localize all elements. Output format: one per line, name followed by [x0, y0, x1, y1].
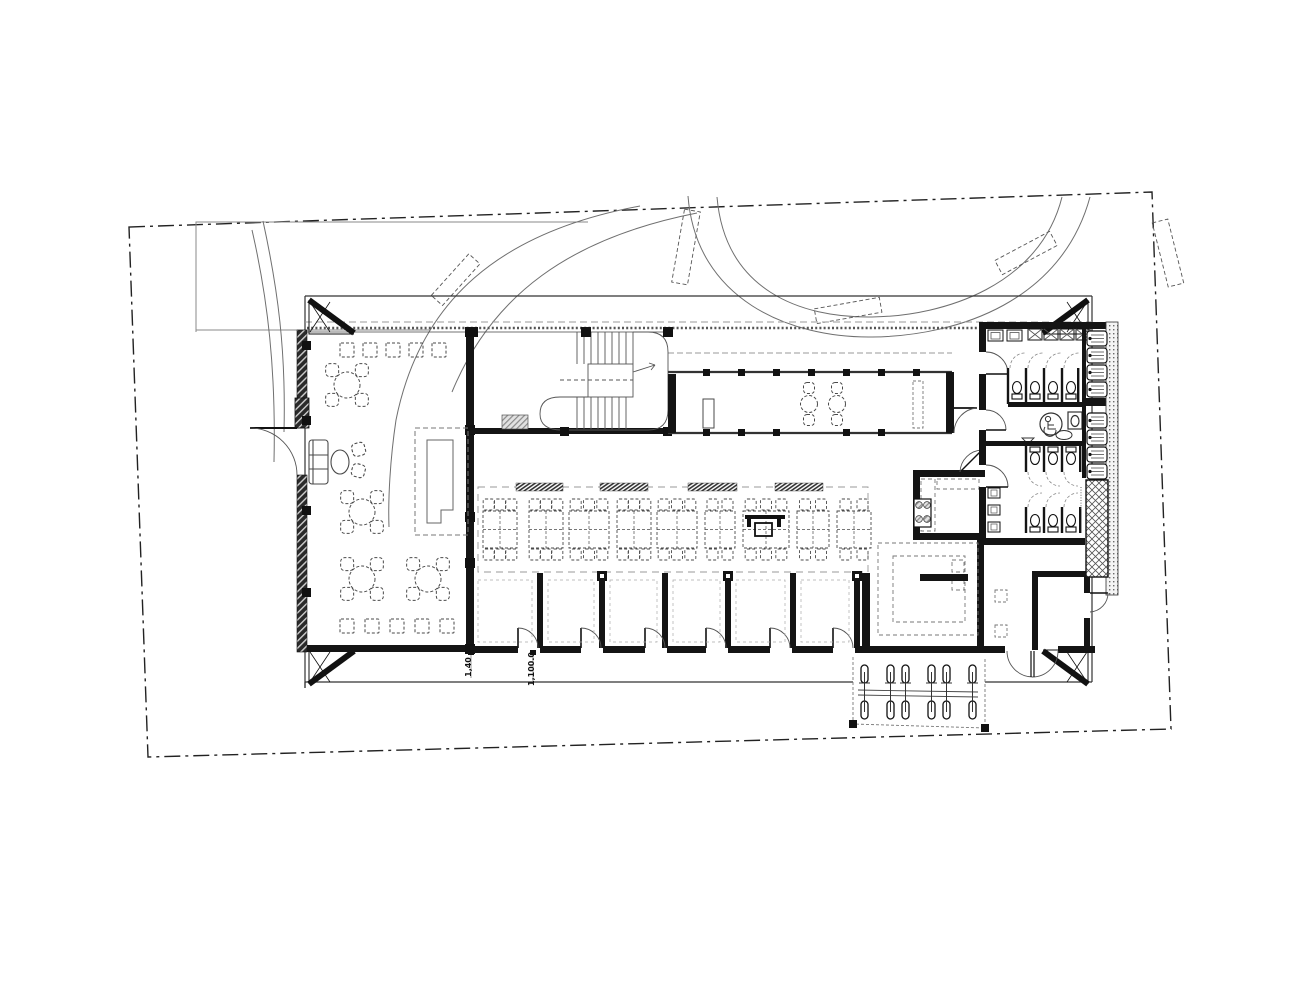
chair: [570, 499, 581, 510]
accessible-toilet: [1068, 412, 1082, 429]
stall-partition: [1007, 368, 1009, 404]
chair: [552, 549, 563, 560]
door-swing-arc: [518, 628, 538, 648]
chair: [495, 549, 506, 560]
round-table-group: [341, 558, 384, 601]
stall-door-arc: [1064, 353, 1079, 368]
stall-door-arc: [1064, 472, 1078, 486]
sink-basin: [991, 507, 997, 513]
toilet-bowl: [1013, 382, 1022, 394]
stool: [340, 343, 354, 357]
driveway-curves: [252, 196, 1090, 527]
toilet-bowl: [1067, 453, 1076, 465]
wash-basin: [1028, 329, 1042, 340]
stall-partition: [1061, 446, 1063, 472]
chair: [341, 520, 354, 533]
restroom-block: [979, 322, 1118, 650]
chair: [840, 549, 851, 560]
serving-station-top: [745, 515, 785, 519]
corridor-wing: [668, 369, 977, 436]
round-table-group: [326, 364, 369, 407]
illegible-label-bar: [516, 483, 563, 491]
sink-rim: [988, 488, 1000, 498]
cafe-right-wall: [466, 330, 474, 652]
restroom-left-wall: [979, 325, 986, 543]
dining-table-group: [705, 499, 735, 560]
illegible-label-bar: [688, 483, 737, 491]
toilet-tank: [1012, 394, 1022, 399]
cafe-stools-bottom: [340, 619, 454, 633]
bay-door: [581, 628, 601, 648]
mens-stall-back-wall: [1008, 402, 1084, 407]
chair: [658, 549, 669, 560]
stall-door-arc: [1046, 493, 1060, 507]
site-plan: [129, 192, 1184, 757]
chair: [761, 499, 772, 510]
sink-rim: [988, 505, 1000, 515]
chair: [745, 499, 756, 510]
stall-partition: [1079, 507, 1081, 533]
stool: [363, 343, 377, 357]
bay-partition-wall: [854, 573, 860, 648]
corridor-table-group: [829, 383, 846, 426]
bay-partition-wall: [725, 573, 731, 648]
accessible-wc-bottom-wall: [979, 441, 1084, 446]
washbasin-counter: [988, 329, 1090, 341]
bike-rack-rails: [858, 690, 978, 697]
chair: [672, 549, 683, 560]
round-table: [415, 566, 441, 592]
round-table-group: [407, 558, 450, 601]
round-table: [829, 396, 846, 413]
chair: [658, 499, 669, 510]
sink-basin: [991, 490, 997, 496]
site-boundary: [129, 192, 1171, 757]
round-table: [334, 372, 360, 398]
round-table: [349, 499, 375, 525]
scullery-wall-stub: [920, 574, 968, 581]
chair: [341, 558, 354, 571]
stall-door-arc: [1046, 353, 1061, 368]
toilet: [1012, 382, 1022, 400]
sink: [988, 522, 1000, 532]
bay-partition-wall: [662, 573, 668, 648]
chair: [541, 499, 552, 510]
dining-table-group: [797, 499, 829, 560]
stair-direction-arrow: [633, 363, 655, 372]
stall-door-arc: [1028, 493, 1042, 507]
exterior-ramp: [1086, 480, 1108, 577]
chair: [529, 499, 540, 510]
door-swing-arc: [770, 628, 790, 648]
bay-partition-wall: [599, 573, 605, 648]
stall-door-arc: [1010, 353, 1025, 368]
bike-parking-pad: [849, 657, 989, 732]
toilet: [1048, 515, 1058, 533]
urinal-shaft: [1082, 322, 1118, 595]
south-wall: [470, 646, 1095, 653]
bay-door: [706, 628, 726, 648]
bay-doors: [518, 628, 853, 648]
scullery-left-wall: [862, 573, 870, 650]
dining-hall: [470, 483, 1095, 653]
stool: [440, 619, 454, 633]
toilet: [1048, 447, 1058, 465]
kitchen-stove: [914, 499, 931, 527]
round-table: [349, 566, 375, 592]
curve-sweep-outer: [389, 206, 640, 527]
stall-door-arc: [1028, 472, 1042, 486]
column-cap-inner: [855, 574, 859, 578]
mens-toilet-stalls: [1007, 353, 1080, 404]
corridor-shelf: [913, 381, 923, 428]
cafe-left-wall-lower: [297, 475, 307, 652]
chair: [832, 383, 843, 394]
bay-partition-wall: [790, 573, 796, 648]
illegible-label-bar: [775, 483, 823, 491]
chair: [617, 499, 628, 510]
stool: [409, 343, 423, 357]
stall-partition: [1079, 446, 1081, 472]
floor-plan-sheet: 1,40 1,100.0: [0, 0, 1294, 1000]
toilet-tank: [1066, 527, 1076, 532]
stall-partition: [1043, 507, 1045, 533]
stall-partition: [1043, 368, 1045, 404]
serving-station-leg: [747, 519, 751, 527]
chair: [552, 499, 563, 510]
bay-door: [833, 628, 853, 648]
building-envelope: [305, 296, 1092, 688]
chair: [800, 549, 811, 560]
bicycle: [859, 665, 870, 719]
corner-brace-bottom-right: [1043, 650, 1088, 684]
stool: [386, 343, 400, 357]
corridor-right-end-wall: [946, 372, 954, 433]
chair: [436, 558, 449, 571]
toilet-bowl: [1049, 453, 1058, 465]
column-cap-inner: [600, 574, 604, 578]
urinal-drain: [1088, 371, 1091, 374]
canopy-outline: [305, 296, 1092, 688]
stool: [432, 343, 446, 357]
south-terrace: [849, 651, 1058, 732]
curve-sweep-inner: [452, 213, 697, 392]
chair: [776, 549, 787, 560]
cafe-round-tables: [326, 364, 450, 601]
round-table-group: [341, 491, 384, 534]
toilet-tank: [1048, 447, 1058, 452]
womens-toilet-stalls: [1025, 446, 1082, 533]
chair: [707, 549, 718, 560]
bay-partition-wall: [537, 573, 543, 648]
chair: [407, 558, 420, 571]
road-markings: [431, 209, 1183, 323]
urinal-drain: [1088, 419, 1091, 422]
urinal-drain: [1088, 354, 1091, 357]
dimensions: 1,40 1,100.0: [464, 650, 536, 686]
sink-rim: [988, 522, 1000, 532]
corridor-left-end-wall: [668, 374, 676, 433]
urinal-unit: [1087, 365, 1107, 380]
toilet-bowl: [1049, 382, 1058, 394]
dining-table-group: [743, 499, 789, 560]
restroom-doors: [986, 352, 1008, 487]
chair: [541, 549, 552, 560]
chair: [584, 549, 595, 560]
sofa-group: [309, 440, 367, 484]
chair: [495, 499, 506, 510]
corridor-bench: [703, 399, 714, 428]
chair: [640, 549, 651, 560]
cafe-bottom-wall: [307, 645, 470, 652]
chair: [722, 499, 733, 510]
chair: [776, 499, 787, 510]
urinal-drain: [1088, 388, 1091, 391]
toilet-tank: [1030, 447, 1040, 452]
chair: [570, 549, 581, 560]
corridor-exit-door: [954, 408, 977, 433]
corridor-table-group: [801, 383, 818, 426]
bicycle: [900, 665, 911, 719]
chair: [840, 499, 851, 510]
chair: [804, 415, 815, 426]
chair: [745, 549, 756, 560]
toilet-bowl: [1049, 515, 1058, 527]
chair: [672, 499, 683, 510]
private-bays: [478, 571, 862, 648]
dining-table-group: [529, 499, 563, 560]
stair-mat: [502, 415, 528, 429]
illegible-label-bar: [600, 483, 648, 491]
chair: [370, 558, 383, 571]
stall-partition: [1061, 368, 1063, 404]
chair: [685, 549, 696, 560]
chair: [722, 549, 733, 560]
chair: [804, 383, 815, 394]
door-swing-arc: [833, 628, 853, 648]
chair: [685, 499, 696, 510]
bay-door: [770, 628, 790, 648]
corridor-tables: [801, 383, 846, 426]
chair: [816, 549, 827, 560]
door-swing-arc: [581, 628, 601, 648]
toilet-tank: [1066, 394, 1076, 399]
sink: [988, 330, 1003, 341]
chair: [832, 415, 843, 426]
chair: [761, 549, 772, 560]
entrance-door: [250, 428, 297, 475]
stall-door-arc: [1064, 493, 1078, 507]
stool: [340, 619, 354, 633]
urinal-unit: [1087, 447, 1107, 462]
sink-basin: [1010, 333, 1019, 340]
toilet-tank: [1048, 527, 1058, 532]
chair: [857, 499, 868, 510]
urinal-drain: [1088, 436, 1091, 439]
chair: [370, 587, 383, 600]
chair: [629, 549, 640, 560]
chair: [597, 549, 608, 560]
stair-hall-bottom-wall: [470, 428, 670, 434]
stair-hall-columns: [468, 327, 673, 436]
chair: [800, 499, 811, 510]
kitchen-door: [960, 450, 982, 472]
chair: [506, 549, 517, 560]
rear-room-door: [1090, 593, 1108, 612]
chair: [341, 587, 354, 600]
stall-door-arc: [1028, 353, 1043, 368]
urinal-drain: [1088, 337, 1091, 340]
chair: [707, 499, 718, 510]
door-swing-arc: [706, 628, 726, 648]
cafe-stools-top: [340, 343, 446, 357]
sink: [988, 488, 1000, 498]
stall-partition: [1043, 446, 1045, 472]
stair-hall: [468, 327, 673, 436]
urinal-unit: [1087, 464, 1107, 479]
bicycle: [885, 665, 896, 719]
chair: [370, 491, 383, 504]
chair: [597, 499, 608, 510]
chair: [857, 549, 868, 560]
dining-label-bars: [516, 483, 823, 491]
round-table: [801, 396, 818, 413]
dim-label-b: 1,100.0: [527, 652, 536, 686]
sink-basin: [991, 333, 1000, 340]
stool: [415, 619, 429, 633]
curve-u-inner: [717, 197, 1062, 317]
chair: [436, 587, 449, 600]
chair: [341, 491, 354, 504]
dim-label-a: 1,40: [464, 657, 473, 677]
bicycle: [926, 665, 937, 719]
basin-cross: [1028, 329, 1042, 340]
toilet-tank: [1030, 527, 1040, 532]
bay-partitions: [537, 571, 862, 648]
sink-basin: [991, 524, 997, 530]
urinal-unit: [1087, 348, 1107, 363]
toilet-tank: [1030, 394, 1040, 399]
sink: [988, 505, 1000, 515]
chair: [483, 499, 494, 510]
column-cap-inner: [726, 574, 730, 578]
stall-door-arc: [1046, 472, 1060, 486]
bicycle: [941, 665, 952, 719]
toilet-bowl: [1067, 382, 1076, 394]
servery-scullery: [862, 540, 984, 650]
toilet-tank: [1066, 447, 1076, 452]
urinal-unit: [1087, 382, 1107, 397]
toilet-tank: [1048, 394, 1058, 399]
chair: [370, 520, 383, 533]
chair: [529, 549, 540, 560]
toilet-bowl: [1031, 515, 1040, 527]
accessible-sink: [1056, 431, 1072, 440]
dining-table-group: [837, 499, 871, 560]
cafe-bar-counter: [415, 428, 468, 535]
chair: [326, 364, 339, 377]
bay-door: [518, 628, 538, 648]
corridor-columns: [703, 369, 920, 436]
urinal-drain: [1088, 470, 1091, 473]
chair: [629, 499, 640, 510]
dining-table-groups: [483, 499, 871, 560]
chair: [355, 393, 368, 406]
chair: [483, 549, 494, 560]
dining-table-group: [657, 499, 697, 560]
urinal-drain: [1088, 453, 1091, 456]
chair: [640, 499, 651, 510]
staircase: [540, 332, 668, 430]
toilet-bowl: [1067, 515, 1076, 527]
stall-partition: [1025, 507, 1027, 533]
womens-bottom-wall: [979, 538, 1085, 545]
chair: [617, 549, 628, 560]
toilet-bowl: [1031, 453, 1040, 465]
stall-partition: [1061, 507, 1063, 533]
stair-treads-lower: [577, 397, 626, 429]
stall-partition: [1077, 368, 1079, 404]
stool: [365, 619, 379, 633]
stall-partition: [1025, 368, 1027, 404]
corner-brace-bottom-left: [309, 650, 354, 684]
serving-station-leg: [777, 519, 781, 527]
chair: [355, 364, 368, 377]
restroom-top-wall: [979, 322, 1112, 329]
toilet: [1030, 447, 1040, 465]
scullery-counters: [878, 543, 978, 635]
toilet: [1048, 382, 1058, 400]
chair: [506, 499, 517, 510]
stair-landing: [588, 364, 633, 397]
dining-table-group: [569, 499, 609, 560]
chair: [584, 499, 595, 510]
womens-side-sinks: [988, 488, 1000, 532]
dining-table-group: [483, 499, 517, 560]
accessible-wc: [1022, 412, 1082, 444]
sink: [1007, 330, 1022, 341]
chair: [816, 499, 827, 510]
toilet: [1066, 515, 1076, 533]
chair: [326, 393, 339, 406]
floor-plan-drawing: 1,40 1,100.0: [0, 0, 1294, 1000]
stool: [390, 619, 404, 633]
chair: [407, 587, 420, 600]
urinal-unit: [1087, 413, 1107, 428]
rear-room: [995, 571, 1108, 650]
dining-table-group: [617, 499, 651, 560]
urinal-unit: [1087, 331, 1107, 346]
toilet: [1066, 382, 1076, 400]
toilet: [1066, 447, 1076, 465]
kitchen: [913, 450, 985, 540]
stall-partition: [1025, 446, 1027, 472]
site-pad-outline: [196, 222, 588, 332]
toilet-bowl: [1031, 382, 1040, 394]
urinal-unit: [1087, 430, 1107, 445]
toilet: [1030, 515, 1040, 533]
toilet: [1030, 382, 1040, 400]
